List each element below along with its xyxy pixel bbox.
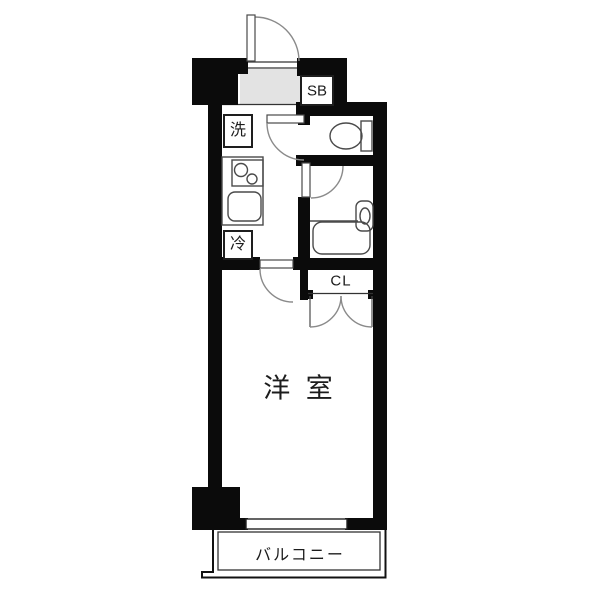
wall-closet-nub-left	[304, 290, 313, 299]
toilet-room	[267, 115, 372, 160]
toilet-door-leaf	[267, 115, 304, 123]
refrigerator-label: 冷	[230, 237, 246, 253]
entrance-door	[247, 15, 299, 61]
entrance-door-leaf	[247, 15, 255, 61]
closet-door-arc-right	[341, 296, 372, 327]
western-room-label: 洋 室	[263, 376, 337, 403]
floorplan-drawing	[0, 0, 600, 600]
room-door-arc	[260, 269, 293, 302]
shoe-box-label: SB	[307, 84, 327, 99]
wall-right	[373, 102, 387, 530]
bathroom	[302, 163, 373, 254]
toilet-bowl	[330, 123, 362, 149]
wall-bottom-right	[345, 518, 387, 530]
closet-door-arc-left	[310, 296, 341, 327]
room-door	[260, 260, 293, 302]
closet-label: CL	[330, 274, 351, 289]
bathroom-door-leaf	[302, 163, 310, 197]
wall-left	[208, 104, 222, 488]
bathroom-door-arc	[311, 166, 343, 198]
floorplan: SB 洗 冷 CL 洋 室 バルコニー	[0, 0, 600, 600]
wall-bottom-left-pillar	[192, 487, 240, 530]
closet-doors	[308, 294, 373, 328]
wall-center	[298, 197, 310, 258]
entrance-door-arc	[255, 17, 299, 61]
washing-machine-label: 洗	[230, 123, 246, 139]
bathtub	[313, 222, 370, 254]
balcony-label: バルコニー	[255, 548, 345, 564]
kitchen	[222, 157, 263, 225]
toilet-door-arc	[267, 123, 304, 160]
wall-entry-block	[192, 58, 238, 105]
balcony-window	[246, 519, 347, 529]
room-door-leaf	[260, 260, 293, 268]
bath-sink-bowl	[360, 208, 370, 224]
wall-room-top-right	[293, 257, 310, 270]
